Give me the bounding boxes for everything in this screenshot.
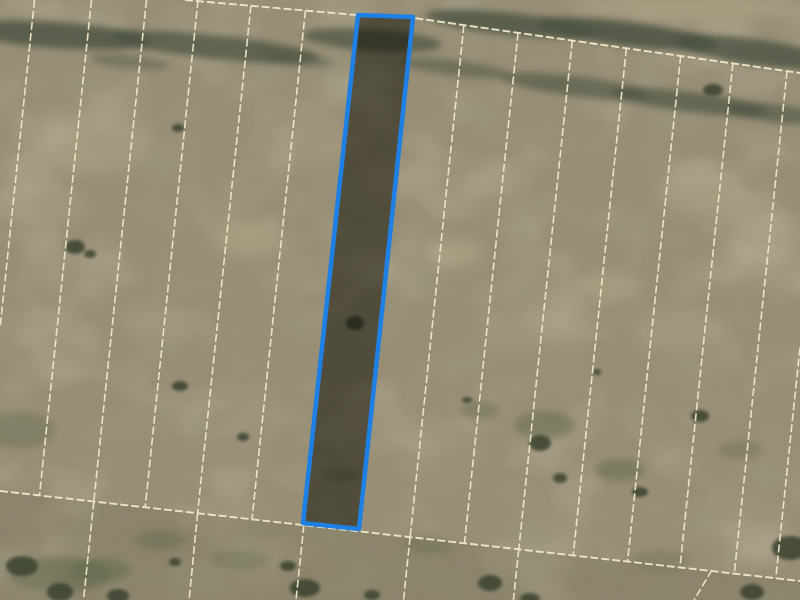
shrub-spot — [290, 579, 320, 597]
green-scrub-patch — [718, 441, 762, 459]
shrub-spot — [65, 240, 85, 254]
shrub-spot — [740, 584, 764, 600]
map-canvas — [0, 0, 800, 600]
green-scrub-patch — [460, 401, 500, 419]
green-scrub-patch — [210, 550, 270, 570]
green-scrub-patch — [135, 530, 185, 550]
light-terrain-patch — [635, 308, 725, 352]
shrub-spot — [172, 124, 184, 132]
shrub-spot — [172, 381, 188, 391]
shrub-spot — [691, 410, 709, 422]
shrub-spot — [169, 558, 181, 566]
shrub-spot — [703, 84, 723, 96]
light-terrain-patch — [427, 239, 483, 267]
shrub-spot — [6, 556, 38, 576]
aerial-map-view[interactable] — [0, 0, 800, 600]
light-terrain-patch — [208, 472, 252, 492]
shrub-spot — [280, 561, 296, 571]
shrub-spot — [364, 590, 380, 600]
shrub-spot — [593, 369, 601, 375]
shrub-spot — [84, 250, 96, 258]
light-terrain-patch — [580, 272, 640, 302]
shrub-spot — [237, 433, 249, 441]
green-scrub-patch — [515, 411, 575, 439]
light-terrain-patch — [120, 305, 180, 335]
shrub-spot — [529, 435, 551, 451]
shrub-spot — [478, 575, 502, 591]
light-terrain-patch — [480, 310, 560, 350]
shrub-spot — [553, 473, 567, 483]
shrub-spot — [462, 397, 472, 403]
